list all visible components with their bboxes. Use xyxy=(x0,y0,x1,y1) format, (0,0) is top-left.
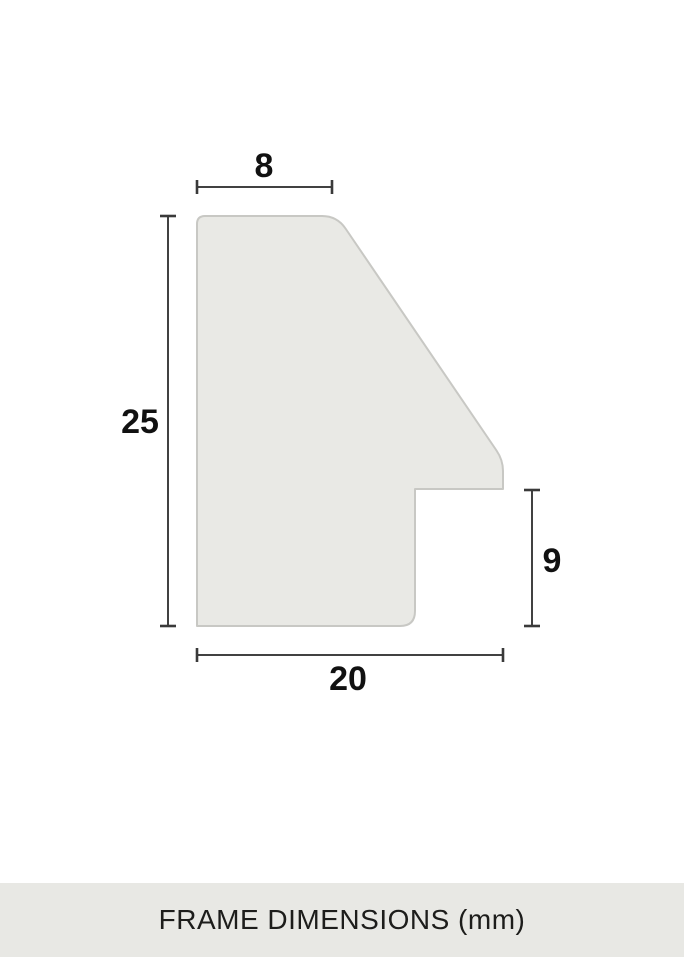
dimension-label-rabbet-height: 9 xyxy=(543,542,562,580)
dimension-label-top-width: 8 xyxy=(255,147,274,185)
dimension-bottom-width: 20 xyxy=(197,648,503,698)
dimension-label-bottom-width: 20 xyxy=(329,660,367,698)
frame-profile-shape xyxy=(197,216,503,626)
dimension-top-width: 8 xyxy=(197,147,332,194)
frame-profile-diagram: 8 25 9 20 xyxy=(0,0,684,883)
footer-title: FRAME DIMENSIONS (mm) xyxy=(159,904,526,936)
dimension-rabbet-height: 9 xyxy=(524,490,561,626)
page: 8 25 9 20 FRAME DIMENSIONS (mm) xyxy=(0,0,684,957)
dimension-height: 25 xyxy=(121,216,176,626)
footer-bar: FRAME DIMENSIONS (mm) xyxy=(0,883,684,957)
dimension-label-height: 25 xyxy=(121,403,159,441)
